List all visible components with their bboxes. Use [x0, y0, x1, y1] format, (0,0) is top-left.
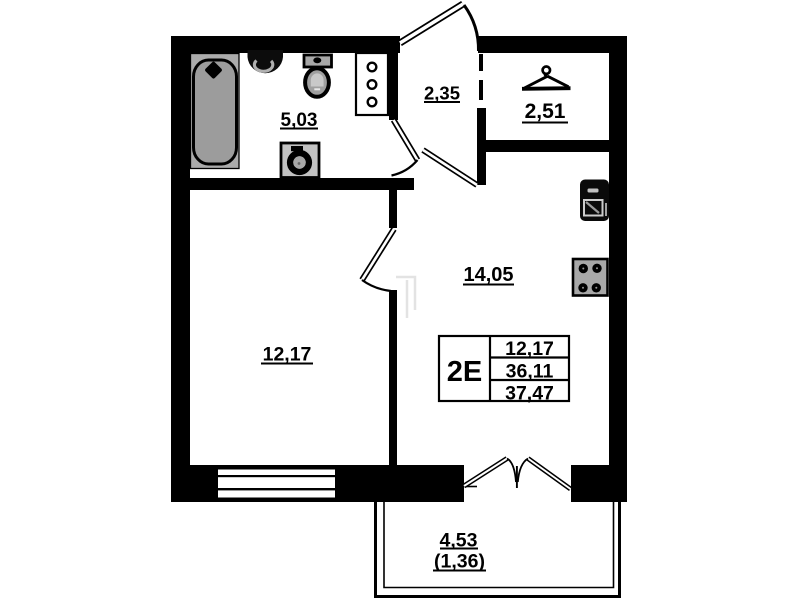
svg-text:14,05: 14,05 [463, 264, 513, 286]
svg-text:2E: 2E [447, 356, 482, 388]
svg-text:12,17: 12,17 [505, 338, 554, 360]
svg-text:12,17: 12,17 [263, 344, 312, 366]
svg-text:2,51: 2,51 [525, 100, 566, 123]
svg-text:(1,36): (1,36) [434, 551, 485, 573]
svg-text:36,11: 36,11 [506, 361, 554, 383]
svg-text:2,35: 2,35 [424, 83, 460, 104]
svg-text:37,47: 37,47 [505, 383, 554, 405]
